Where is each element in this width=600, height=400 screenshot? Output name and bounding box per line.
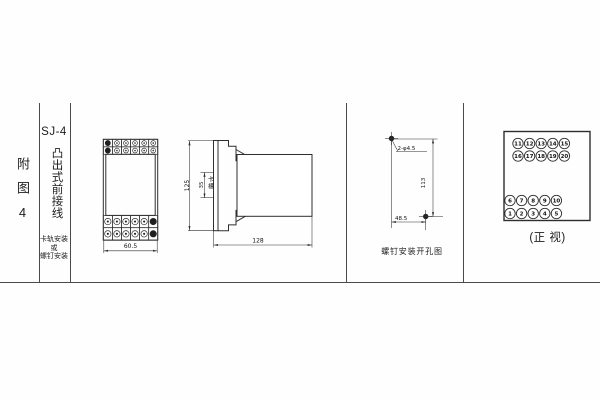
terminal-18: 18	[536, 151, 546, 161]
mounting-line-3: 螺钉安装	[36, 253, 72, 262]
terminal-10: 10	[551, 195, 561, 205]
slot-label: 卡槽	[206, 176, 215, 190]
terminal-8: 8	[528, 195, 538, 205]
terminal-14: 14	[548, 138, 558, 148]
terminal-panel-caption: (正 视)	[495, 229, 600, 245]
front-top-terminal-strip	[103, 139, 157, 154]
horizontal-dimension: 48.5	[392, 216, 426, 222]
slot-dim-text: 35	[199, 181, 205, 188]
screw-head-dark	[105, 148, 111, 154]
terminal-7: 7	[516, 195, 526, 205]
terminal-4: 4	[540, 208, 550, 218]
width-dim-text: 60.5	[124, 243, 138, 250]
svg-text:8: 8	[531, 198, 535, 204]
svg-text:1: 1	[508, 211, 512, 217]
svg-text:9: 9	[543, 198, 547, 204]
terminal-15: 15	[559, 138, 569, 148]
terminal-17: 17	[524, 151, 534, 161]
svg-text:11: 11	[514, 141, 522, 147]
screw-head-dark	[150, 218, 156, 224]
depth-dim-text: 128	[252, 237, 264, 244]
figure-number-label: 附图4	[13, 157, 32, 231]
terminal-2: 2	[516, 208, 526, 218]
top-step	[218, 141, 236, 151]
vertical-dimension: 113	[421, 139, 433, 217]
terminal-9: 9	[540, 195, 550, 205]
svg-text:15: 15	[561, 141, 569, 147]
terminal-6: 6	[505, 195, 515, 205]
terminal-1: 1	[505, 208, 515, 218]
terminal-16: 16	[513, 151, 523, 161]
svg-text:7: 7	[520, 198, 524, 204]
terminal-11: 11	[513, 138, 523, 148]
front-view-drawing: 60.5	[95, 130, 170, 265]
terminal-panel: 11 12 13 14 15 16 17 18 19 20 6 7 8 9 10…	[495, 125, 600, 245]
svg-text:12: 12	[526, 141, 534, 147]
svg-text:18: 18	[537, 154, 545, 160]
hole-callout: 2-φ4.5	[393, 141, 428, 152]
svg-text:14: 14	[549, 141, 557, 147]
relay-body	[237, 155, 312, 217]
svg-text:17: 17	[526, 154, 534, 160]
sheet-bottom-rule	[0, 282, 600, 283]
svg-text:16: 16	[514, 154, 522, 160]
side-view-drawing: 125 35 128	[180, 130, 320, 255]
terminal-20: 20	[559, 151, 569, 161]
mounting-line-1: 卡轨安装	[36, 236, 72, 245]
depth-dimension: 128	[214, 216, 312, 247]
front-bottom-terminal-strip	[103, 215, 157, 240]
screw-head-dark	[105, 140, 111, 146]
wiring-type-label: 凸出式前接线	[49, 147, 65, 219]
svg-text:13: 13	[537, 141, 545, 147]
terminal-3: 3	[528, 208, 538, 218]
terminal-13: 13	[536, 138, 546, 148]
terminal-12: 12	[524, 138, 534, 148]
height-dim-text: 125	[184, 180, 191, 192]
mounting-method-label: 卡轨安装 或 螺钉安装	[36, 236, 72, 262]
bottom-step	[218, 221, 236, 231]
front-view-body	[106, 154, 155, 215]
hole-size-text: 2-φ4.5	[398, 146, 416, 152]
column-rule-3	[346, 103, 347, 282]
svg-text:5: 5	[554, 211, 558, 217]
model-label: SJ-4	[38, 126, 70, 138]
svg-text:6: 6	[508, 198, 512, 204]
hole-diagram-caption: 螺钉安装开孔图	[368, 246, 456, 257]
svg-text:20: 20	[561, 154, 569, 160]
terminal-19: 19	[548, 151, 558, 161]
svg-text:10: 10	[553, 198, 561, 204]
terminal-5: 5	[551, 208, 561, 218]
screw-head-dark	[150, 231, 156, 237]
vertical-dim-text: 113	[421, 177, 427, 188]
figure-sheet: 附图4 SJ-4 凸出式前接线 卡轨安装 或 螺钉安装	[0, 0, 600, 400]
horizontal-dim-text: 48.5	[395, 216, 408, 222]
svg-text:2: 2	[520, 211, 524, 217]
svg-text:4: 4	[543, 211, 547, 217]
mounting-line-2: 或	[36, 245, 72, 254]
svg-text:19: 19	[549, 154, 557, 160]
hole-diagram: 2-φ4.5 113 48.5	[370, 120, 465, 265]
svg-text:3: 3	[531, 211, 535, 217]
width-dimension: 60.5	[104, 241, 157, 253]
